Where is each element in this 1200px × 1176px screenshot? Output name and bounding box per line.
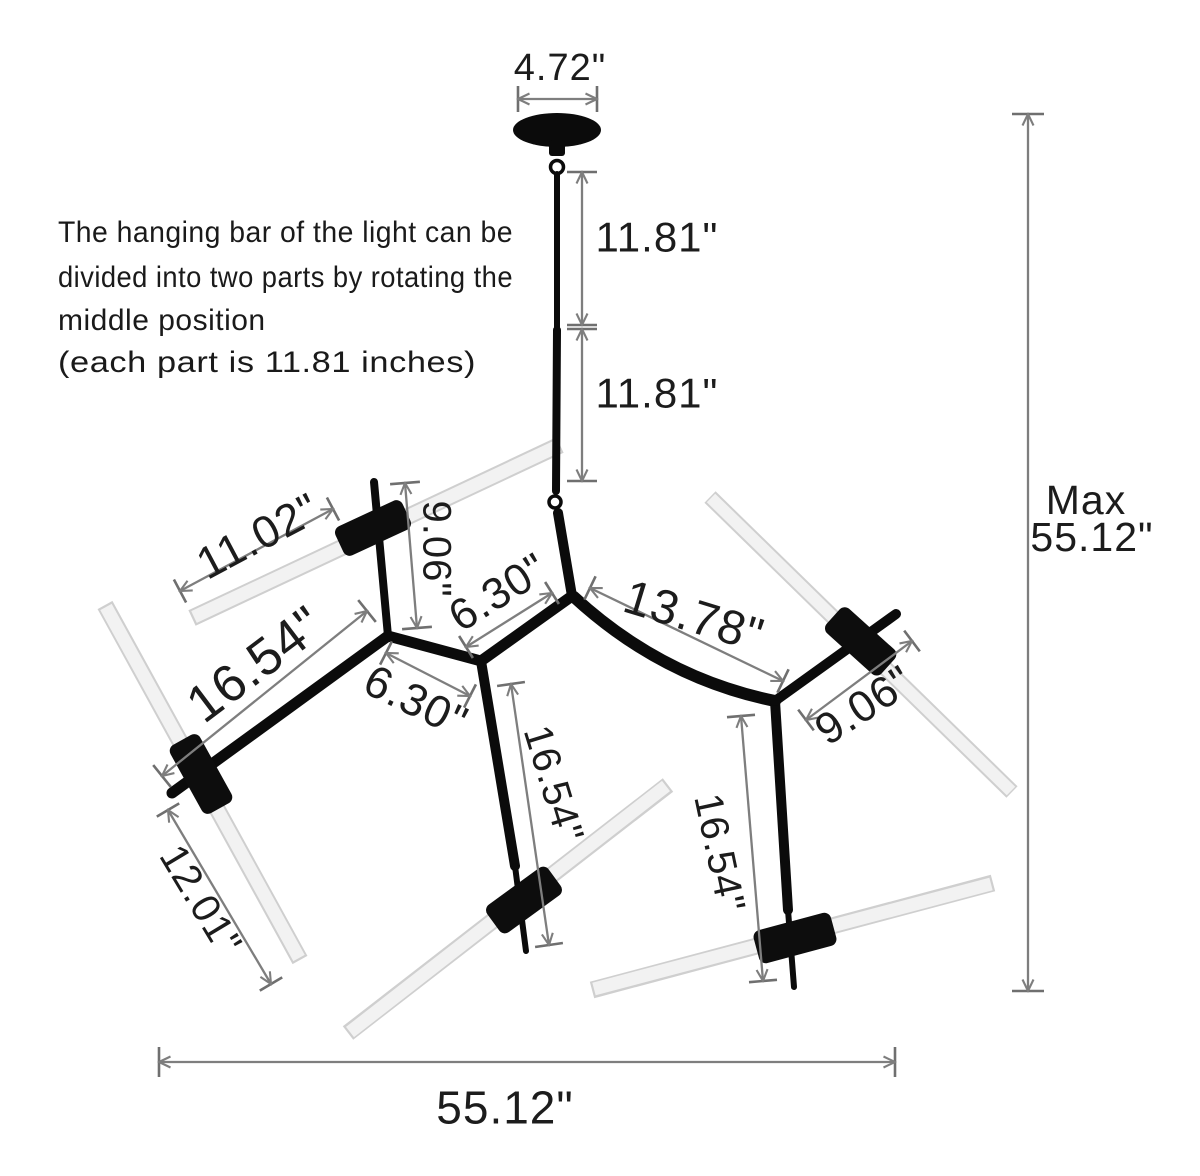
note-line: The hanging bar of the light can be <box>58 216 513 249</box>
dimension-label: 16.54" <box>685 790 753 917</box>
dimension-label: 55.12" <box>436 1082 573 1134</box>
dimension-label: 4.72" <box>514 47 606 89</box>
dimension-label: 11.81" <box>596 213 719 260</box>
note-line: (each part is 11.81 inches) <box>58 346 476 379</box>
socket-sleeve <box>752 911 838 965</box>
hanging-rod-lower <box>556 330 557 491</box>
hanger-link <box>558 513 572 596</box>
dimension-label: 55.12" <box>1030 514 1153 560</box>
dimension-label: 11.81" <box>596 369 719 416</box>
bottom-hook-ring <box>549 496 561 508</box>
branch-arm-center-drop <box>481 661 515 866</box>
dimension-label: 9.06" <box>414 500 458 597</box>
note-line: middle position <box>58 304 266 337</box>
note-line: divided into two parts by rotating the <box>58 261 513 294</box>
dimension-diagram: The hanging bar of the light can be divi… <box>0 0 1200 1176</box>
branch-arm-right-drop <box>775 701 788 910</box>
note-text: The hanging bar of the light can be divi… <box>58 216 513 379</box>
canopy-neck <box>549 140 565 156</box>
